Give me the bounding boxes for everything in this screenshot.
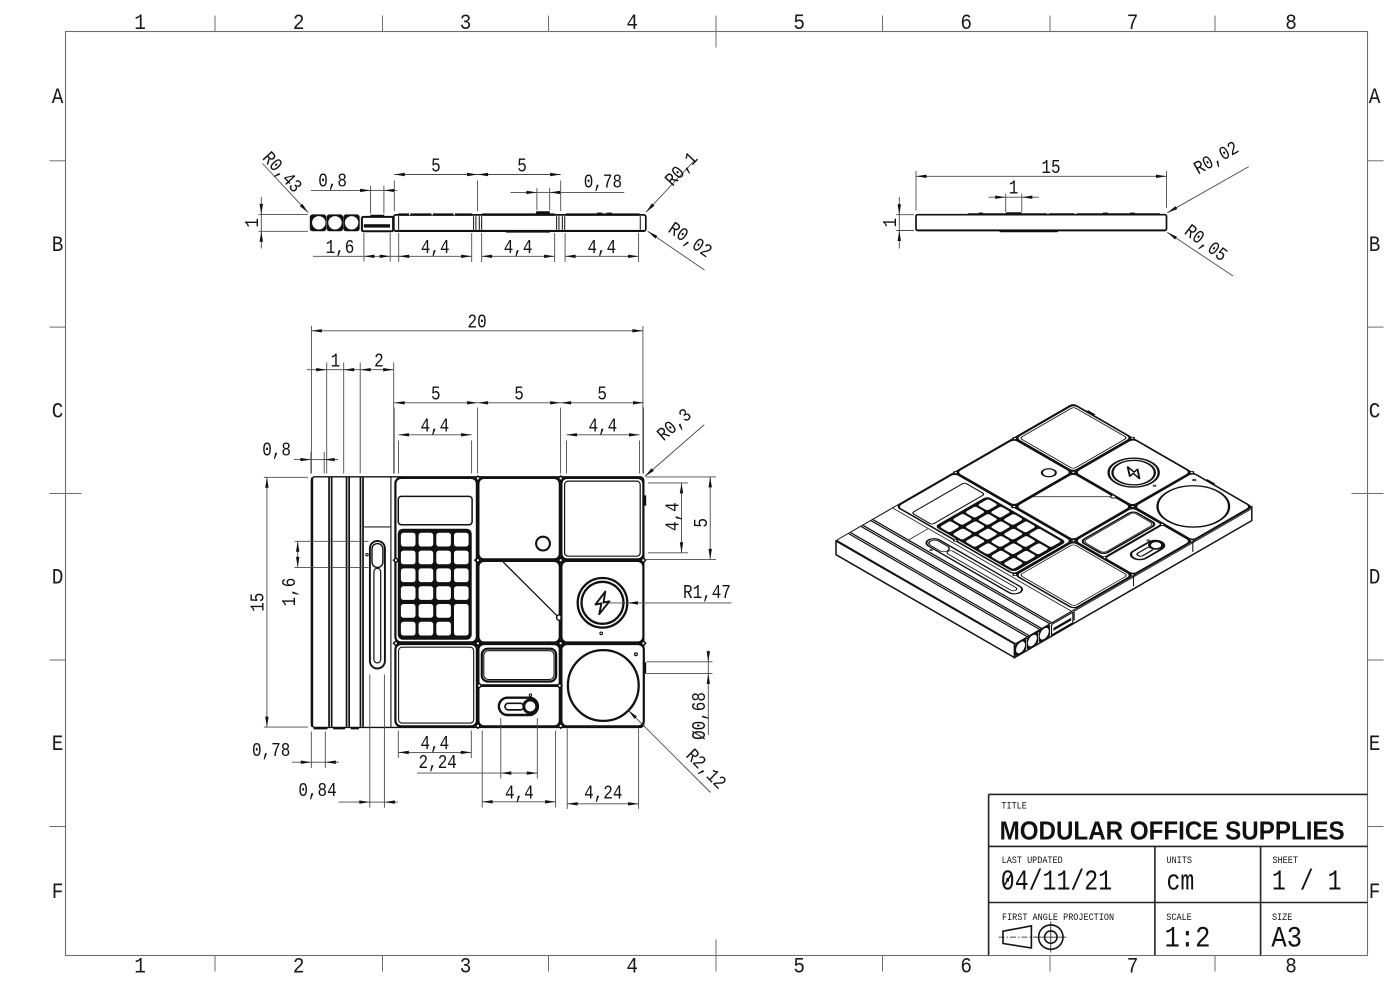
svg-text:2: 2: [293, 956, 305, 980]
svg-text:7: 7: [1127, 12, 1139, 36]
svg-text:1: 1: [134, 12, 146, 36]
svg-text:8: 8: [1285, 12, 1297, 36]
svg-text:A3: A3: [1271, 923, 1302, 956]
svg-text:8: 8: [1285, 956, 1297, 980]
svg-text:D: D: [1369, 567, 1381, 591]
svg-text:4: 4: [626, 12, 638, 36]
svg-text:4,4: 4,4: [589, 416, 618, 438]
svg-text:1: 1: [881, 218, 903, 228]
svg-text:1: 1: [331, 351, 341, 373]
svg-text:2: 2: [374, 351, 384, 373]
svg-text:04/11/21: 04/11/21: [1001, 865, 1112, 898]
svg-text:F: F: [52, 881, 64, 905]
svg-text:R1,47: R1,47: [683, 583, 731, 605]
svg-text:5: 5: [431, 156, 441, 178]
svg-text:5: 5: [517, 156, 527, 178]
svg-text:7: 7: [1127, 956, 1139, 980]
svg-text:15: 15: [1041, 158, 1060, 180]
svg-text:5: 5: [692, 518, 714, 528]
svg-text:Ø0,68: Ø0,68: [690, 692, 712, 740]
svg-text:4,4: 4,4: [587, 238, 616, 260]
svg-text:2: 2: [293, 12, 305, 36]
svg-text:A: A: [52, 86, 64, 110]
svg-text:5: 5: [793, 12, 805, 36]
svg-text:0,8: 0,8: [318, 171, 347, 193]
svg-text:6: 6: [960, 956, 972, 980]
svg-text:4,4: 4,4: [421, 238, 450, 260]
svg-text:0,84: 0,84: [298, 781, 336, 803]
svg-text:F: F: [1369, 881, 1381, 905]
svg-text:FIRST ANGLE PROJECTION: FIRST ANGLE PROJECTION: [1002, 911, 1114, 923]
svg-text:4,4: 4,4: [505, 783, 534, 805]
svg-text:C: C: [1369, 400, 1381, 424]
svg-text:3: 3: [460, 956, 472, 980]
svg-text:cm: cm: [1167, 865, 1195, 898]
svg-text:C: C: [52, 400, 64, 424]
svg-text:1,6: 1,6: [326, 238, 355, 260]
svg-text:E: E: [52, 733, 64, 757]
svg-text:1: 1: [1009, 178, 1019, 200]
svg-text:5: 5: [793, 956, 805, 980]
svg-text:E: E: [1369, 733, 1381, 757]
svg-text:1: 1: [243, 218, 265, 228]
svg-text:SCALE: SCALE: [1166, 911, 1192, 923]
svg-text:0,78: 0,78: [252, 741, 290, 763]
svg-text:D: D: [52, 567, 64, 591]
svg-text:5: 5: [597, 384, 607, 406]
svg-text:1: 1: [134, 956, 146, 980]
svg-text:B: B: [52, 234, 64, 258]
svg-text:4,4: 4,4: [421, 416, 450, 438]
svg-text:4,24: 4,24: [584, 783, 622, 805]
svg-text:4,4: 4,4: [504, 238, 533, 260]
svg-text:5: 5: [514, 384, 524, 406]
svg-text:2,24: 2,24: [419, 753, 457, 775]
svg-text:6: 6: [960, 12, 972, 36]
svg-text:4,4: 4,4: [663, 502, 685, 531]
svg-text:SIZE: SIZE: [1272, 911, 1293, 923]
svg-text:5: 5: [431, 384, 441, 406]
svg-text:4: 4: [626, 956, 638, 980]
svg-text:A: A: [1369, 86, 1381, 110]
svg-text:TITLE: TITLE: [1001, 800, 1027, 812]
svg-text:20: 20: [468, 312, 487, 334]
svg-text:3: 3: [460, 12, 472, 36]
svg-text:15: 15: [249, 593, 271, 612]
svg-text:0,78: 0,78: [584, 172, 622, 194]
svg-text:1 / 1: 1 / 1: [1272, 865, 1342, 898]
svg-text:MODULAR OFFICE SUPPLIES: MODULAR OFFICE SUPPLIES: [1000, 817, 1345, 846]
svg-text:1:2: 1:2: [1165, 923, 1211, 956]
svg-text:B: B: [1369, 234, 1381, 258]
svg-text:1,6: 1,6: [280, 578, 302, 607]
svg-text:0,8: 0,8: [262, 440, 291, 462]
